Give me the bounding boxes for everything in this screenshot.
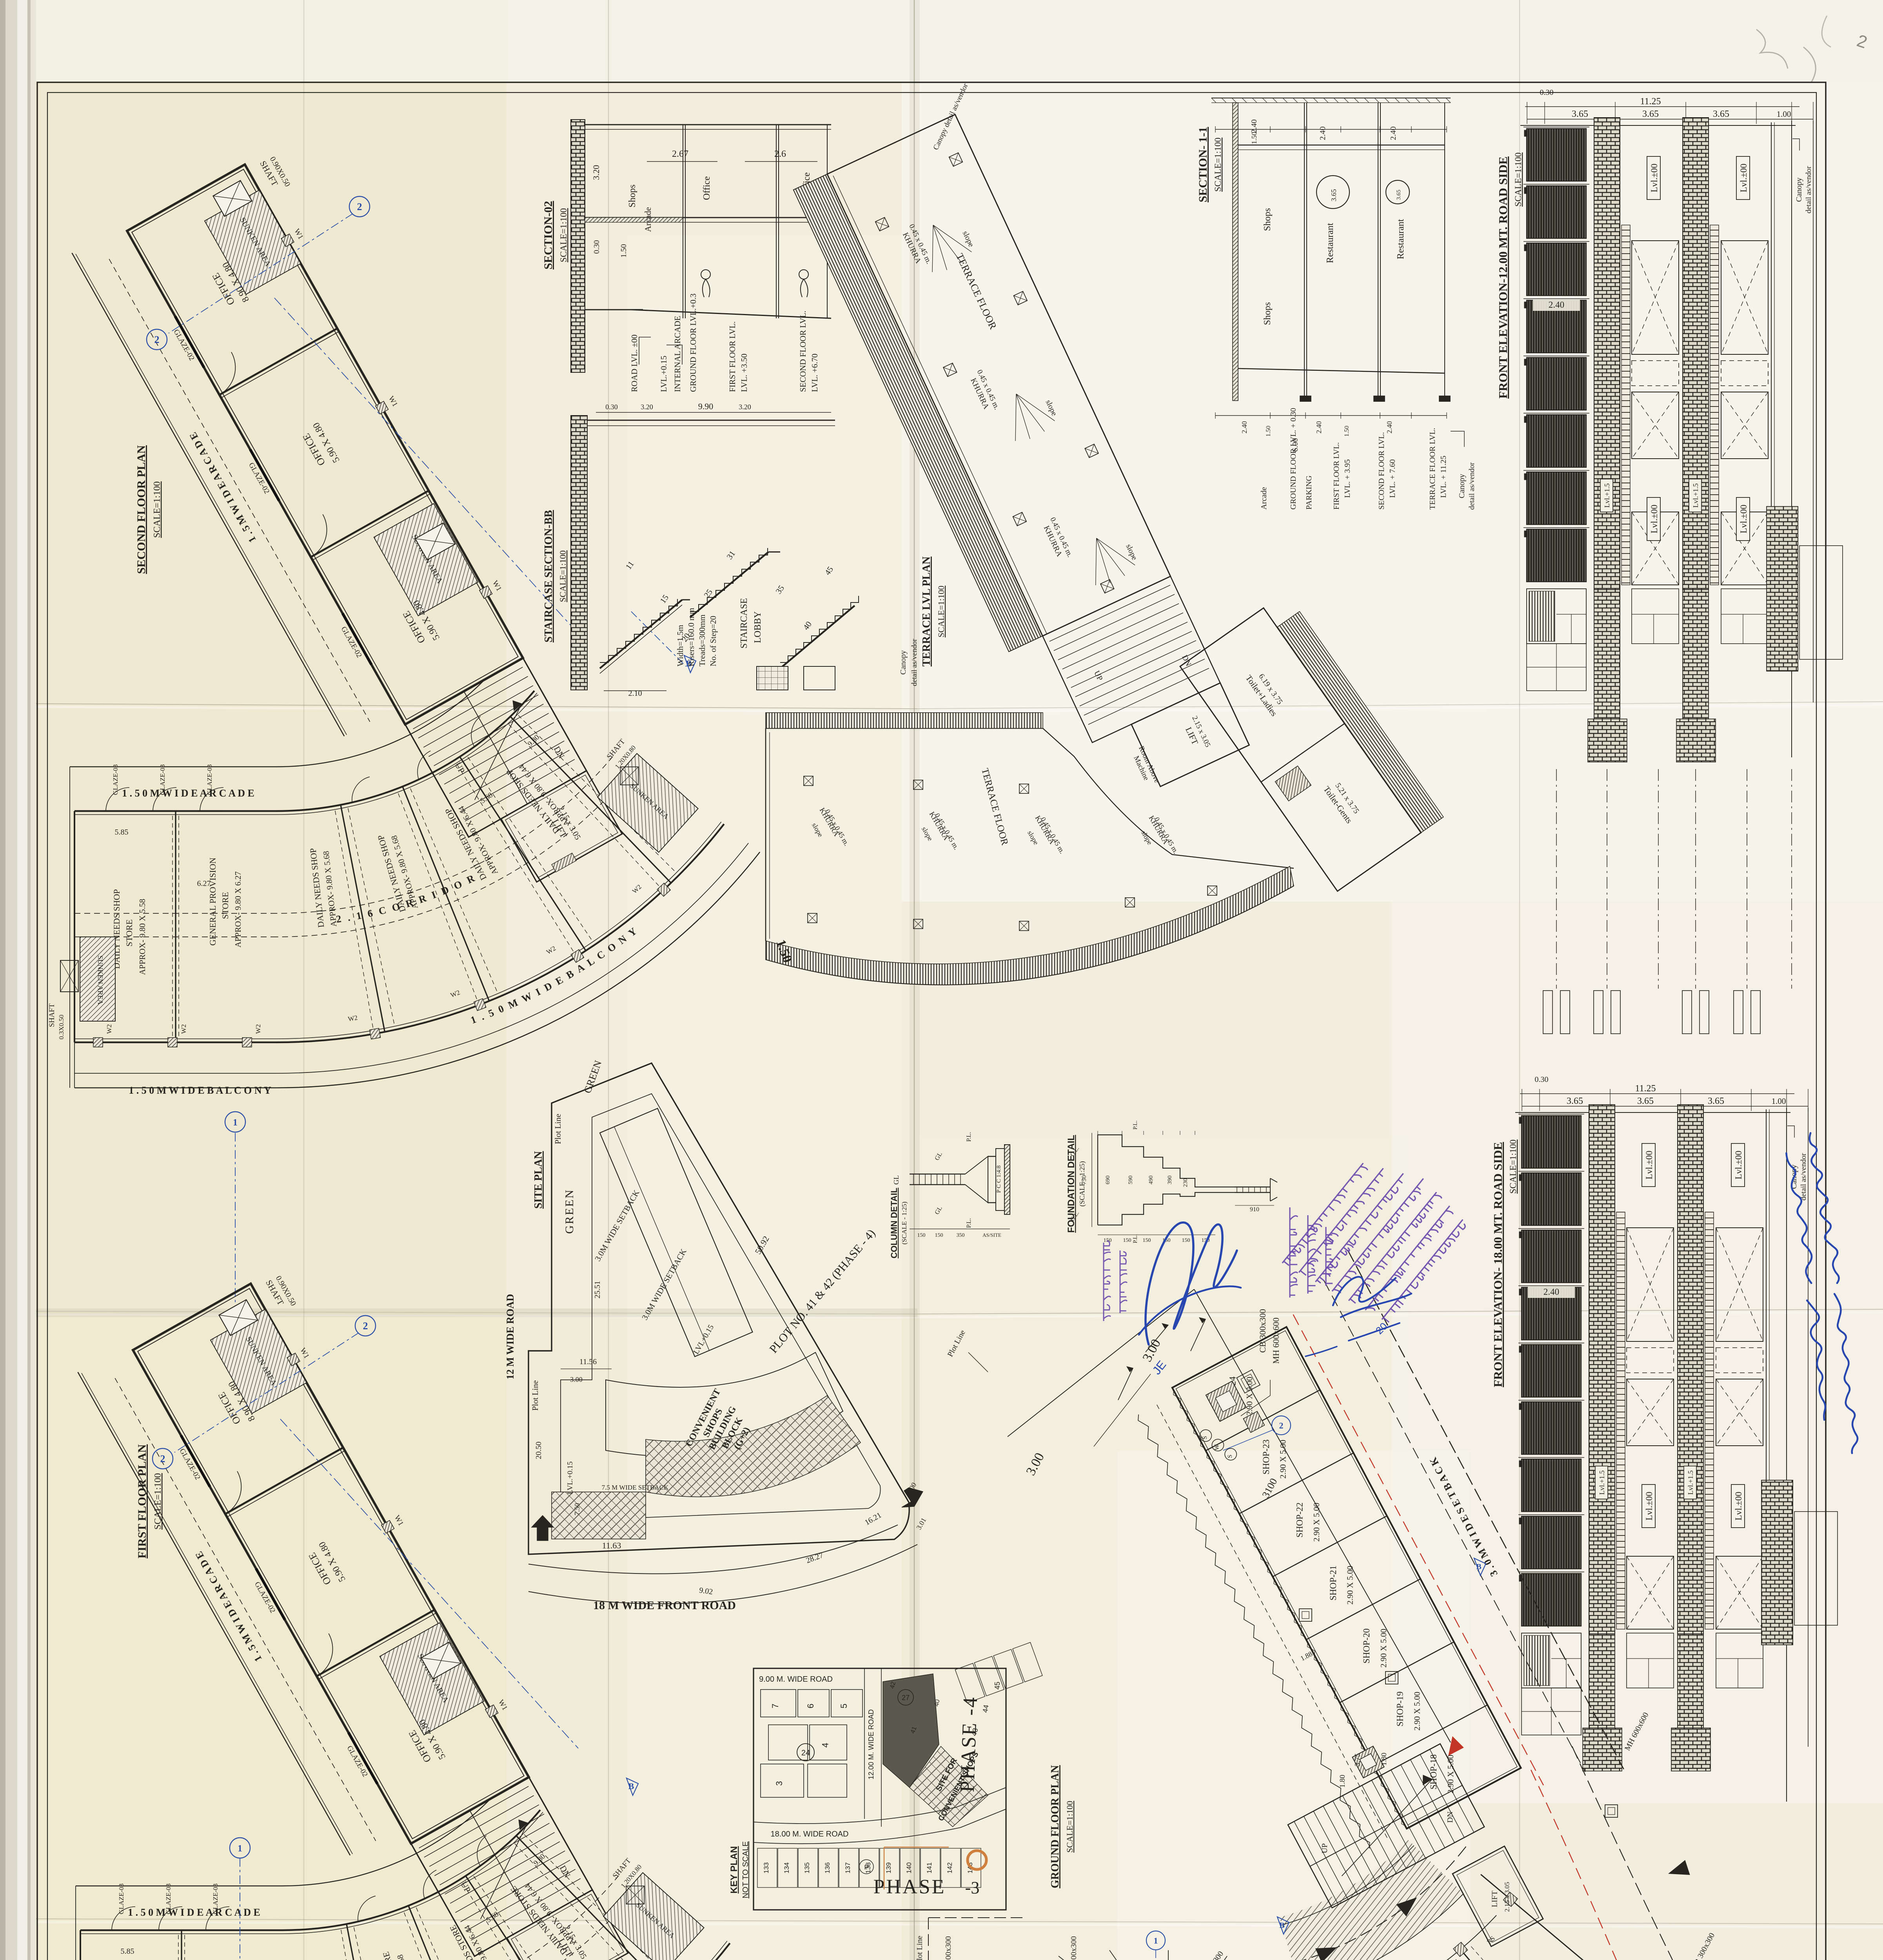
svg-text:Lvl.±00: Lvl.±00 (1644, 1151, 1654, 1179)
svg-text:CB 300x300: CB 300x300 (1258, 1309, 1267, 1353)
svg-text:COLUMN DETAIL: COLUMN DETAIL (889, 1188, 899, 1258)
svg-text:2.40: 2.40 (1543, 1287, 1559, 1297)
svg-text:1.00: 1.00 (1772, 1096, 1786, 1106)
svg-text:1.80: 1.80 (1380, 1753, 1388, 1766)
svg-text:0.30: 0.30 (592, 240, 601, 254)
svg-text:GLAZE-03: GLAZE-03 (165, 1884, 172, 1914)
svg-text:1.50: 1.50 (1265, 426, 1272, 437)
svg-text:MH 600x600: MH 600x600 (1271, 1318, 1281, 1364)
svg-text:2.90 X 5.00: 2.90 X 5.00 (1278, 1440, 1288, 1479)
svg-text:GLAZE-03: GLAZE-03 (118, 1884, 125, 1914)
svg-text:Restaurant: Restaurant (1396, 219, 1406, 259)
svg-text:2.90 X 5.00: 2.90 X 5.00 (1312, 1503, 1321, 1542)
svg-text:P.L.: P.L. (1132, 1120, 1139, 1129)
svg-text:2: 2 (357, 201, 362, 212)
svg-text:150: 150 (917, 1232, 926, 1238)
svg-text:SHOP-21: SHOP-21 (1328, 1565, 1338, 1600)
svg-text:STORE: STORE (220, 892, 230, 919)
svg-text:45: 45 (993, 1682, 1001, 1690)
svg-text:GLAZE-03: GLAZE-03 (206, 764, 213, 795)
svg-text:1: 1 (1154, 1936, 1158, 1945)
svg-text:2: 2 (363, 1320, 368, 1332)
svg-text:590: 590 (1128, 1176, 1134, 1185)
svg-text:6.27: 6.27 (197, 879, 211, 888)
svg-text:11.25: 11.25 (1640, 96, 1661, 107)
svg-text:APPROX- 9.80 X 5.58: APPROX- 9.80 X 5.58 (138, 899, 147, 975)
svg-text:SHOP-22: SHOP-22 (1295, 1503, 1304, 1537)
svg-text:Plot Line: Plot Line (530, 1380, 540, 1411)
svg-text:1.00: 1.00 (1777, 109, 1791, 119)
svg-text:3.65: 3.65 (1567, 1096, 1583, 1106)
svg-text:2.40: 2.40 (1318, 127, 1327, 140)
svg-text:7.50: 7.50 (573, 1503, 581, 1515)
svg-text:Lvl.±00: Lvl.±00 (1734, 1492, 1743, 1520)
svg-text:SHOP-19: SHOP-19 (1395, 1691, 1405, 1726)
svg-text:1 . 5 0 M W I D E B A L: 1 . 5 0 M W I D E B A L C O N Y (129, 1085, 271, 1096)
svg-text:LVL. + 3.95: LVL. + 3.95 (1343, 459, 1352, 498)
svg-text:18.00 M. WIDE ROAD: 18.00 M. WIDE ROAD (771, 1830, 849, 1838)
svg-text:2.67: 2.67 (672, 149, 688, 159)
svg-text:P C C 1:4:8: P C C 1:4:8 (996, 1165, 1002, 1193)
svg-text:KEY PLAN: KEY PLAN (729, 1846, 739, 1894)
svg-text:UP: UP (1320, 1843, 1329, 1853)
svg-text:2.90 X 5.00: 2.90 X 5.00 (1345, 1566, 1355, 1604)
svg-text:3.20: 3.20 (641, 403, 653, 411)
svg-text:5.85: 5.85 (121, 1947, 134, 1956)
svg-text:Lvl.+1.5: Lvl.+1.5 (1603, 483, 1611, 508)
svg-text:3.20: 3.20 (739, 403, 751, 411)
svg-text:2: 2 (1279, 1421, 1284, 1430)
svg-text:Office: Office (702, 176, 712, 200)
svg-text:7: 7 (770, 1704, 780, 1708)
svg-text:6.00: 6.00 (1291, 438, 1300, 452)
svg-text:3.65: 3.65 (1642, 109, 1659, 119)
svg-text:11.56: 11.56 (579, 1357, 597, 1366)
svg-text:2.90 X 5.00: 2.90 X 5.00 (1412, 1692, 1422, 1731)
svg-text:150: 150 (1143, 1238, 1151, 1243)
svg-text:139: 139 (885, 1862, 892, 1873)
svg-text:SHAFT: SHAFT (48, 1004, 56, 1027)
svg-text:Arcade: Arcade (643, 207, 653, 232)
svg-text:20.50: 20.50 (534, 1442, 543, 1459)
svg-text:SCALE=1:100: SCALE=1:100 (1065, 1801, 1075, 1853)
svg-text:2.40: 2.40 (1389, 127, 1398, 140)
svg-text:SECOND FLOOR PLAN: SECOND FLOOR PLAN (135, 445, 148, 574)
svg-text:SCALE=1:100: SCALE=1:100 (153, 1473, 163, 1530)
svg-text:GL: GL (892, 1175, 900, 1185)
svg-text:Lvl.±00: Lvl.±00 (1644, 1492, 1654, 1520)
svg-text:Lvl.+1.5: Lvl.+1.5 (1687, 1470, 1694, 1495)
svg-text:150: 150 (1182, 1238, 1190, 1243)
svg-text:Width=1.5m: Width=1.5m (675, 625, 685, 666)
svg-text:Lvl.±00: Lvl.±00 (1739, 163, 1749, 192)
svg-text:LVL.+0.15: LVL.+0.15 (659, 356, 668, 392)
svg-text:SCALE=1:100: SCALE=1:100 (936, 586, 946, 637)
svg-text:24: 24 (801, 1749, 810, 1757)
svg-text:SCALE=1:100: SCALE=1:100 (1508, 1140, 1518, 1194)
svg-text:SECOND FLOOR LVL.: SECOND FLOOR LVL. (1377, 432, 1386, 510)
svg-text:25.51: 25.51 (593, 1281, 602, 1299)
svg-text:-3: -3 (965, 1878, 980, 1897)
svg-text:GLAZE-03: GLAZE-03 (212, 1884, 219, 1914)
svg-text:1 . 5 0 M W I D E A R C: 1 . 5 0 M W I D E A R C A D E (122, 788, 254, 799)
svg-text:Risers=160.0 mm: Risers=160.0 mm (686, 608, 696, 666)
svg-text:2.40: 2.40 (1315, 421, 1323, 434)
svg-text:P.L.: P.L. (966, 1218, 972, 1228)
svg-text:5: 5 (839, 1704, 849, 1708)
svg-text:LVL.+0.15: LVL.+0.15 (566, 1461, 574, 1494)
svg-text:detail as/vendor: detail as/vendor (1468, 462, 1476, 510)
svg-text:Canopy: Canopy (1795, 178, 1803, 202)
svg-text:detail as/vendor: detail as/vendor (1805, 166, 1813, 213)
svg-text:Shops: Shops (1262, 208, 1273, 231)
svg-text:Shops: Shops (1262, 302, 1273, 325)
svg-text:SECOND FLOOR LVL.: SECOND FLOOR LVL. (798, 311, 808, 392)
svg-text:Canopy: Canopy (1458, 474, 1466, 498)
svg-text:6: 6 (806, 1704, 815, 1708)
svg-text:FIRST FLOOR PLAN: FIRST FLOOR PLAN (136, 1444, 149, 1558)
svg-text:150: 150 (935, 1232, 943, 1238)
svg-text:FOUNDATION DETAIL: FOUNDATION DETAIL (1066, 1135, 1077, 1233)
svg-text:P.L.: P.L. (966, 1132, 972, 1142)
svg-text:SCALE=1:100: SCALE=1:100 (1213, 138, 1223, 192)
svg-text:INTERNAL ARCADE: INTERNAL ARCADE (673, 316, 682, 392)
svg-text:134: 134 (783, 1862, 790, 1873)
svg-text:40: 40 (933, 1699, 941, 1707)
svg-text:Lvl.+1.5: Lvl.+1.5 (1598, 1470, 1606, 1495)
svg-text:2.40: 2.40 (1385, 421, 1393, 434)
svg-text:3.65: 3.65 (1396, 190, 1402, 200)
svg-text:3.65: 3.65 (1572, 109, 1588, 119)
svg-text:18 M WIDE FRONT ROAD: 18 M WIDE FRONT ROAD (593, 1599, 736, 1612)
svg-text:SUNKEN AREA: SUNKEN AREA (96, 955, 104, 1005)
svg-text:0.30: 0.30 (1535, 1075, 1549, 1084)
svg-text:NOT TO SCALE: NOT TO SCALE (741, 1841, 750, 1898)
svg-text:230: 230 (1182, 1178, 1189, 1187)
svg-text:9.90: 9.90 (698, 401, 714, 411)
svg-text:1: 1 (233, 1118, 238, 1128)
svg-text:GROUND FLOOR LVL. + 0.30: GROUND FLOOR LVL. + 0.30 (1289, 408, 1298, 510)
svg-text:12 M WIDE ROAD: 12 M WIDE ROAD (505, 1294, 516, 1379)
svg-text:3.65: 3.65 (1713, 109, 1729, 119)
svg-text:STAIRCASE: STAIRCASE (739, 598, 749, 649)
svg-text:142: 142 (946, 1862, 953, 1873)
svg-text:GROUND FLOOR PLAN: GROUND FLOOR PLAN (1049, 1765, 1061, 1888)
svg-text:Plot Line: Plot Line (553, 1114, 563, 1144)
svg-text:GENERAL PROVISION: GENERAL PROVISION (208, 858, 218, 946)
svg-text:SCALE=1:100: SCALE=1:100 (558, 550, 568, 602)
svg-text:SHOP-18: SHOP-18 (1429, 1755, 1438, 1789)
svg-text:LVL. +6.70: LVL. +6.70 (810, 354, 819, 392)
svg-text:detail as/vendor: detail as/vendor (910, 639, 919, 686)
svg-text:27: 27 (902, 1694, 910, 1702)
svg-text:SCALE=1:100: SCALE=1:100 (559, 208, 568, 262)
svg-text:SECTION-02: SECTION-02 (542, 201, 555, 269)
svg-text:910: 910 (1250, 1206, 1259, 1213)
svg-text:CB 300x300: CB 300x300 (944, 1936, 953, 1960)
svg-text:P.L.: P.L. (1132, 1234, 1139, 1243)
svg-text:2.6: 2.6 (774, 149, 786, 159)
svg-text:1.80: 1.80 (1338, 1775, 1347, 1788)
svg-text:1.50: 1.50 (619, 244, 628, 258)
svg-text:2: 2 (160, 1453, 165, 1465)
svg-text:140: 140 (905, 1862, 913, 1873)
svg-text:Lvl.+1.5: Lvl.+1.5 (1692, 483, 1700, 508)
svg-text:1: 1 (238, 1844, 242, 1854)
svg-text:DN: DN (1446, 1811, 1454, 1823)
svg-text:0.30: 0.30 (605, 403, 618, 411)
svg-text:SITE PLAN: SITE PLAN (532, 1151, 545, 1209)
svg-text:SHOP-20: SHOP-20 (1362, 1628, 1371, 1663)
svg-text:Restaurant: Restaurant (1325, 223, 1335, 263)
svg-text:3.00: 3.00 (570, 1376, 583, 1383)
svg-text:136: 136 (824, 1862, 831, 1873)
svg-text:GREEN: GREEN (563, 1189, 576, 1234)
svg-text:B: B (1279, 1921, 1284, 1930)
svg-text:TERRACE FLOOR LVL.: TERRACE FLOOR LVL. (1428, 428, 1437, 510)
svg-text:137: 137 (844, 1862, 852, 1873)
svg-text:Plot Line: Plot Line (915, 1936, 924, 1960)
svg-text:LIFT: LIFT (1490, 1891, 1499, 1907)
svg-text:S: S (1202, 1436, 1208, 1439)
svg-text:detail as/vendor: detail as/vendor (1799, 1153, 1808, 1200)
svg-text:2.15 x 3.05: 2.15 x 3.05 (1503, 1882, 1511, 1912)
svg-text:7.5 M WIDE SETBACK: 7.5 M WIDE SETBACK (602, 1484, 669, 1491)
svg-text:No. of Step=20: No. of Step=20 (708, 616, 718, 666)
svg-text:CB 300x300: CB 300x300 (1070, 1936, 1078, 1960)
svg-text:APPROX- 9.80 X 6.27: APPROX- 9.80 X 6.27 (233, 871, 243, 947)
svg-text:W2: W2 (105, 1024, 113, 1034)
svg-text:4: 4 (821, 1743, 830, 1748)
svg-text:2.40: 2.40 (1549, 300, 1564, 310)
svg-text:FIRST FLOOR LVL.: FIRST FLOOR LVL. (1332, 442, 1341, 510)
svg-text:350: 350 (957, 1232, 965, 1238)
svg-text:PARKING: PARKING (1305, 475, 1313, 510)
svg-text:GLAZE-03: GLAZE-03 (159, 764, 166, 795)
svg-text:PHASE -4: PHASE -4 (956, 1696, 982, 1793)
svg-text:LOBBY: LOBBY (753, 611, 763, 643)
svg-text:Lvl.±00: Lvl.±00 (1649, 505, 1659, 533)
svg-text:Treads=300mm: Treads=300mm (697, 615, 707, 666)
svg-text:S: S (1227, 1455, 1233, 1458)
svg-text:1 . 5 0 M W I D E A R C: 1 . 5 0 M W I D E A R C A D E (128, 1907, 260, 1918)
svg-text:44: 44 (981, 1704, 990, 1713)
svg-text:(SCALE - 1:25): (SCALE - 1:25) (901, 1201, 908, 1245)
svg-text:TERRACE LVL PLAN: TERRACE LVL PLAN (921, 557, 933, 667)
svg-text:11.63: 11.63 (602, 1541, 621, 1550)
svg-text:3: 3 (774, 1781, 784, 1786)
svg-text:(SCALE - 1:25): (SCALE - 1:25) (1078, 1161, 1086, 1207)
svg-text:B: B (628, 1781, 634, 1791)
svg-text:LVL. + 11.25: LVL. + 11.25 (1439, 456, 1448, 498)
svg-text:LVL. +3.50: LVL. +3.50 (739, 354, 749, 392)
svg-text:ROAD LVL. ±00: ROAD LVL. ±00 (630, 334, 639, 392)
svg-text:2.40: 2.40 (1240, 421, 1248, 434)
svg-text:3.20: 3.20 (591, 165, 601, 180)
svg-text:390: 390 (1167, 1176, 1173, 1185)
svg-text:3.65: 3.65 (1637, 1096, 1654, 1106)
svg-text:3.75: 3.75 (1354, 1753, 1362, 1766)
svg-text:Shops: Shops (627, 185, 637, 208)
svg-text:W: W (1214, 1444, 1220, 1450)
svg-text:LVL. + 7.60: LVL. + 7.60 (1388, 459, 1397, 498)
svg-text:Lvl.±00: Lvl.±00 (1649, 163, 1659, 192)
svg-text:133: 133 (763, 1862, 770, 1873)
svg-text:3.65: 3.65 (1708, 1096, 1724, 1106)
svg-text:9.00 M. WIDE ROAD: 9.00 M. WIDE ROAD (759, 1675, 833, 1684)
svg-text:SECTION- 1-1: SECTION- 1-1 (1197, 127, 1209, 203)
svg-text:12.00 M. WIDE ROAD: 12.00 M. WIDE ROAD (867, 1709, 875, 1779)
svg-text:2.40: 2.40 (1250, 120, 1258, 133)
svg-text:FIRST FLOOR LVL.: FIRST FLOOR LVL. (728, 321, 737, 392)
svg-text:FRONT ELEVATION- 18.00 MT. ROA: FRONT ELEVATION- 18.00 MT. ROAD SIDE (1491, 1142, 1505, 1387)
svg-text:FRONT ELEVATION-12.00 MT. ROAD: FRONT ELEVATION-12.00 MT. ROAD SIDE (1496, 156, 1510, 399)
svg-text:1.50: 1.50 (1344, 426, 1350, 437)
svg-text:GROUND FLOOR LVL.+0.3: GROUND FLOOR LVL.+0.3 (688, 294, 698, 392)
svg-text:SCALE=1:100: SCALE=1:100 (152, 481, 162, 538)
svg-text:B: B (1476, 1563, 1481, 1571)
svg-text:P: P (864, 1864, 868, 1871)
svg-text:135: 135 (803, 1862, 811, 1873)
svg-text:STAIRCASE SECTION-BB: STAIRCASE SECTION-BB (543, 510, 555, 642)
svg-text:Lvl.±00: Lvl.±00 (1739, 505, 1749, 533)
svg-text:150: 150 (1123, 1238, 1131, 1243)
svg-text:STORE: STORE (124, 919, 134, 946)
svg-text:3.65: 3.65 (1330, 189, 1338, 201)
svg-text:11.25: 11.25 (1635, 1083, 1656, 1094)
svg-text:2: 2 (154, 334, 160, 345)
svg-text:W2: W2 (180, 1024, 187, 1034)
svg-text:0.3X0.50: 0.3X0.50 (58, 1014, 65, 1039)
svg-text:141: 141 (926, 1862, 933, 1873)
svg-text:AS/SITE: AS/SITE (982, 1232, 1001, 1238)
svg-text:0.30: 0.30 (1540, 88, 1554, 97)
svg-text:W2: W2 (254, 1024, 262, 1034)
svg-text:GLAZE-03: GLAZE-03 (112, 764, 119, 795)
svg-text:2.90 X 5.00: 2.90 X 5.00 (1379, 1629, 1388, 1668)
svg-text:690: 690 (1105, 1176, 1111, 1185)
svg-text:SCALE=1:100: SCALE=1:100 (1513, 152, 1523, 207)
svg-text:SHOP-23: SHOP-23 (1261, 1439, 1271, 1474)
svg-text:1.50: 1.50 (1250, 132, 1258, 144)
svg-text:Lvl.±00: Lvl.±00 (1734, 1151, 1743, 1179)
svg-text:5.85: 5.85 (115, 828, 129, 837)
svg-text:Canopy: Canopy (899, 650, 908, 675)
svg-text:Arcade: Arcade (1260, 487, 1268, 510)
svg-text:490: 490 (1148, 1176, 1154, 1185)
